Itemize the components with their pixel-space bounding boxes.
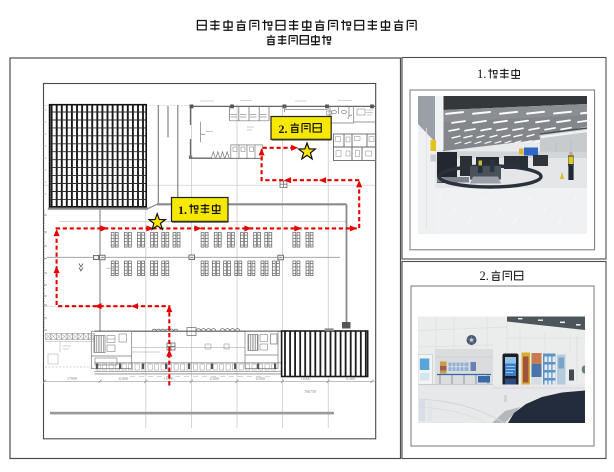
- svg-text:11000: 11000: [118, 376, 128, 381]
- svg-text:2.: 2.: [279, 122, 288, 136]
- svg-text:2.: 2.: [480, 269, 489, 283]
- svg-text:1.: 1.: [178, 203, 187, 217]
- svg-text:766750: 766750: [304, 389, 316, 394]
- svg-text:11000: 11000: [209, 376, 219, 381]
- svg-text:1.: 1.: [477, 67, 486, 81]
- svg-text:11000: 11000: [255, 376, 265, 381]
- svg-text:17909: 17909: [67, 376, 77, 381]
- svg-text:11308: 11308: [345, 376, 355, 381]
- svg-text:11000: 11000: [301, 376, 311, 381]
